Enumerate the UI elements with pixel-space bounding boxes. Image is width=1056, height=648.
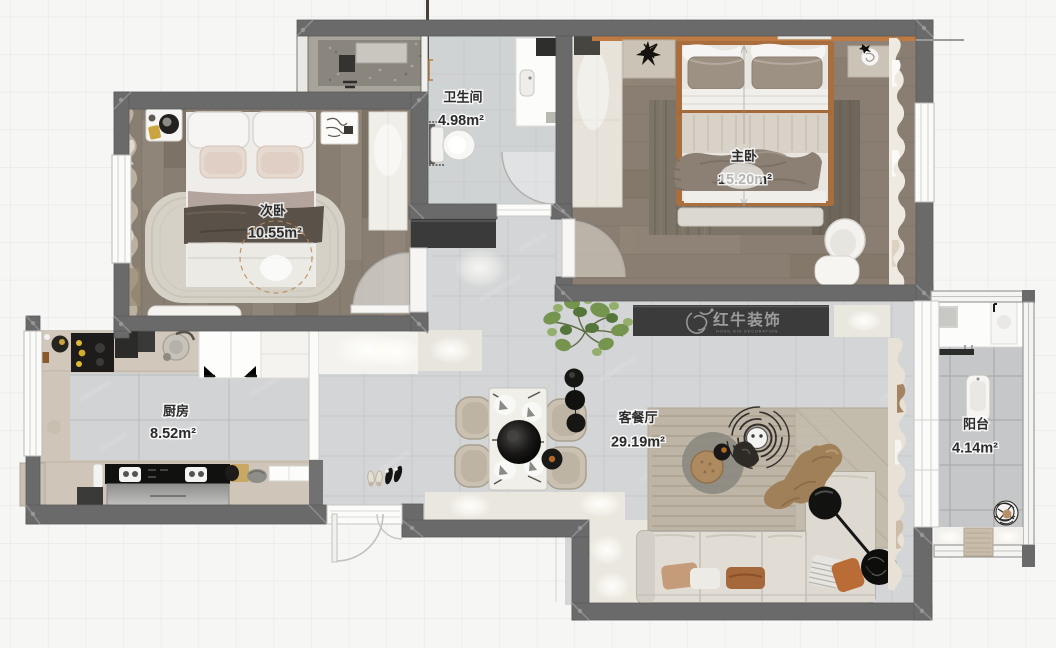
svg-text:主卧: 主卧 — [731, 149, 757, 164]
svg-text:4.14m²: 4.14m² — [952, 441, 998, 457]
svg-text:次卧: 次卧 — [260, 203, 286, 218]
svg-text:卫生间: 卫生间 — [443, 90, 482, 105]
svg-text:29.19m²: 29.19m² — [611, 435, 665, 451]
svg-text:HONG NIU DECORATION: HONG NIU DECORATION — [716, 330, 778, 334]
svg-text:厨房: 厨房 — [163, 404, 189, 419]
svg-text:阳台: 阳台 — [963, 417, 989, 432]
svg-text:红牛装饰: 红牛装饰 — [713, 310, 781, 329]
svg-text:4.98m²: 4.98m² — [438, 113, 484, 129]
svg-text:客餐厅: 客餐厅 — [618, 410, 657, 425]
svg-text:10.55m²: 10.55m² — [248, 226, 302, 242]
svg-text:8.52m²: 8.52m² — [150, 426, 196, 442]
